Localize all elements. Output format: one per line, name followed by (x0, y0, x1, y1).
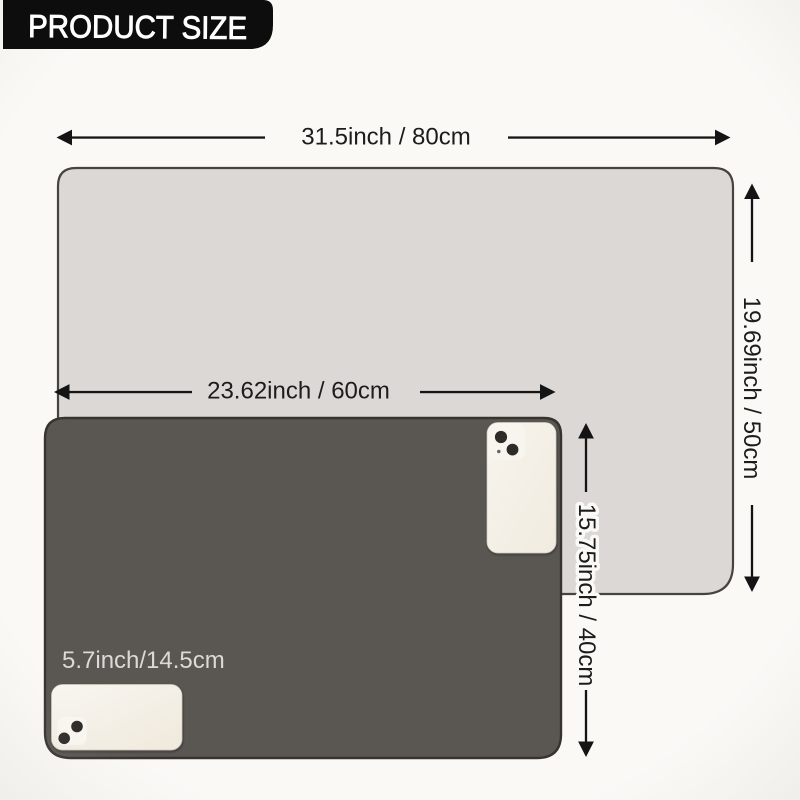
svg-text:PRODUCT SIZE: PRODUCT SIZE (28, 8, 247, 46)
